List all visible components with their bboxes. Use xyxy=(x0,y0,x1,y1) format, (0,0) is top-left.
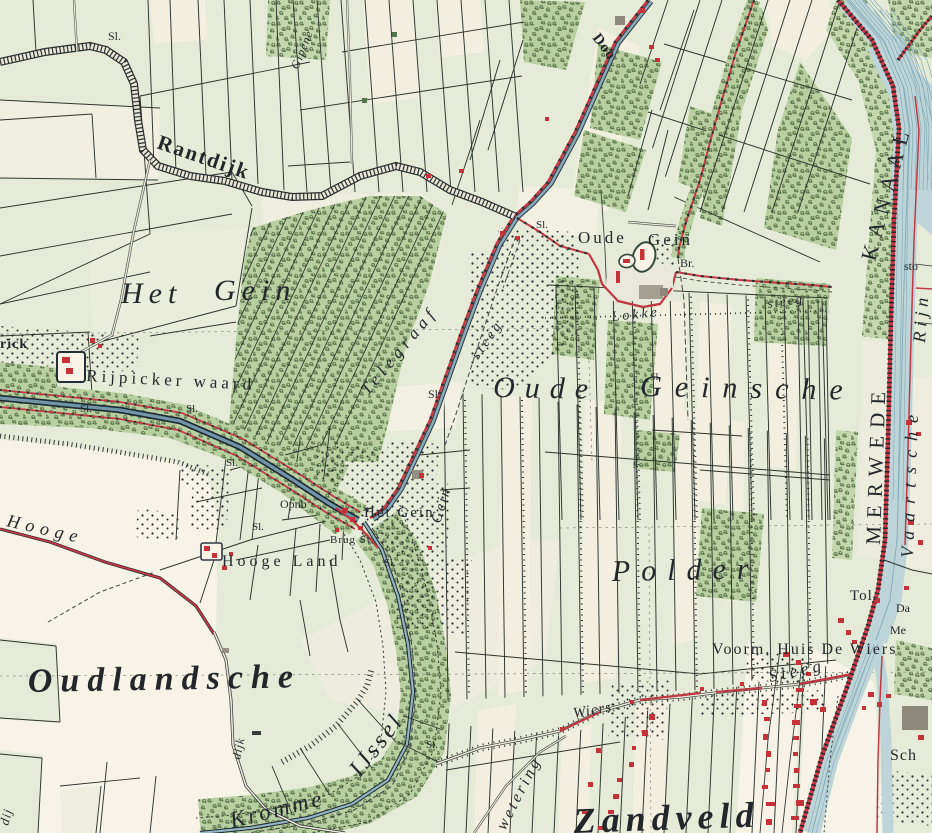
svg-text:Da: Da xyxy=(896,601,911,615)
svg-text:Me: Me xyxy=(890,623,906,637)
svg-text:sto: sto xyxy=(904,259,918,273)
